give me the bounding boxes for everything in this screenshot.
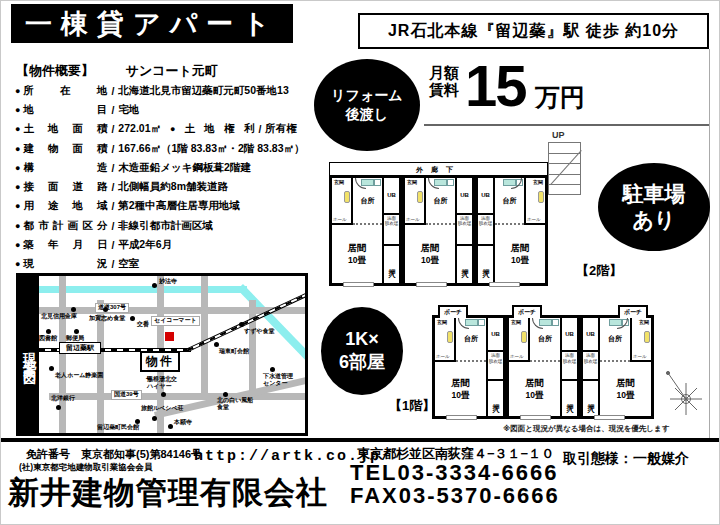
hall-label: ホール (633, 354, 647, 359)
map-poi-label: 妙法寺 (159, 278, 177, 285)
window-symbol (489, 282, 520, 287)
living-room: 居間10畳 (509, 362, 560, 416)
living-room-size: 10畳 (526, 390, 544, 402)
overview-item-label: 所在地 (23, 84, 107, 98)
overview-separator: / (111, 239, 114, 251)
washroom: 洗面 脱衣場 (457, 215, 472, 246)
entrance-area: 玄関ホール (435, 318, 456, 362)
overview-row: ●地目/宅地 (15, 100, 315, 119)
kitchen-area: 台所 (495, 178, 524, 225)
overview-separator: / (111, 258, 114, 270)
map-side-banner: 現地案内図 (19, 276, 39, 433)
living-room-size: 10畳 (617, 390, 635, 402)
map-side-label: 現地案内図 (20, 342, 38, 367)
station-access-box: JR石北本線『留辺蘂』駅 徒歩 約10分 (358, 13, 709, 49)
overview-item-value: 宅地 (118, 103, 139, 117)
toilet-fixture (644, 331, 650, 343)
reform-badge-line1: リフォーム (331, 86, 402, 105)
living-room-label: 居間 (348, 242, 367, 255)
bullet-icon: ● (15, 163, 20, 173)
overview-header: 【物件概要】 サンコート元町 (16, 62, 218, 80)
map-poi-dot (46, 329, 51, 334)
floor2-label: 【2階】 (576, 262, 622, 280)
map-poi-dot (161, 392, 166, 397)
map-poi-label: 温根湯北交 ハイヤー (147, 376, 177, 390)
map-poi-label: 図書館 (39, 335, 57, 342)
map-poi-label: 旅館ルベシベ荘 (141, 405, 184, 412)
overview-separator: / (111, 104, 114, 116)
overview-row: ●用途地域/第2種中高層住居専用地域 (15, 197, 315, 216)
map-poi-label: 本願寺 (174, 419, 192, 426)
kitchen-label: 台所 (503, 196, 517, 206)
map-poi-label: すずや食堂 (244, 328, 274, 335)
entrance-label: 玄関 (437, 319, 447, 325)
bullet-icon: ● (15, 124, 20, 134)
overview-row: ●建物面積/167.66㎡（1階 83.83㎡・2階 83.83㎡） (15, 139, 315, 158)
overview-item-label: 土地権利 (184, 122, 254, 136)
kitchen-label: 台所 (464, 334, 478, 344)
floorplan-unit: UB洗面 脱衣場押入玄関ホール台所居間10畳 (329, 175, 402, 286)
overview-separator: / (111, 162, 114, 174)
living-room-size: 10畳 (421, 255, 439, 267)
bullet-icon: ● (15, 201, 20, 211)
map-poi-label: 老人ホーム静楽園 (55, 372, 103, 379)
overview-section-label: 【物件概要】 (16, 63, 94, 78)
overview-row: ●都市計画区分/非線引都市計画区域 (15, 216, 315, 235)
rooms-badge-line2: 6部屋 (339, 351, 385, 374)
parking-badge-line1: 駐車場 (623, 181, 686, 207)
map-poi-dot (152, 416, 157, 421)
entrance-label: 玄関 (334, 179, 344, 185)
parking-badge: 駐車場 あり (598, 163, 710, 251)
porch: ポーチ (618, 305, 648, 318)
service-column: UB洗面 脱衣場押入 (560, 318, 577, 416)
unit-bath-room: UB (384, 178, 399, 215)
washroom: 洗面 脱衣場 (384, 215, 399, 246)
kitchen-label: 台所 (361, 196, 375, 206)
station-marker: 留辺蘂駅 (59, 342, 101, 354)
page-right-border (709, 49, 710, 438)
bullet-icon: ● (15, 105, 20, 115)
service-column: UB洗面 脱衣場押入 (455, 178, 472, 283)
station-access-text: JR石北本線『留辺蘂』駅 徒歩 約10分 (388, 21, 679, 42)
unit-bath-room: UB (457, 178, 472, 215)
overview-row: ●現況/空室 (15, 255, 315, 274)
entrance-label: 玄関 (639, 319, 649, 325)
map-poi-label: 瑞東町会館 (219, 348, 249, 355)
toilet-fixture (521, 331, 527, 343)
kitchen-label: 台所 (538, 334, 552, 344)
window-symbol (594, 415, 625, 420)
service-column: UB洗面 脱衣場押入 (583, 318, 600, 416)
window-symbol (343, 282, 374, 287)
map-poi-label: 留辺蘂町民会館 (97, 424, 139, 431)
map-poi-label: 交番 (137, 321, 149, 328)
porch: ポーチ (438, 305, 468, 318)
washroom: 洗面 脱衣場 (478, 215, 493, 246)
river-shape (39, 286, 247, 293)
bullet-icon: ● (15, 86, 20, 96)
overview-row: ●所在地/北海道北見市留辺蘂町元町50番地13 (15, 81, 315, 100)
map-poi-label: 加賀志め食堂 (89, 315, 125, 322)
map-poi-dot (103, 307, 108, 312)
washroom: 洗面 脱衣場 (562, 352, 577, 381)
window-symbol (416, 282, 447, 287)
map-poi-label: 下水道管理 センター (263, 373, 293, 387)
floorplan-unit: UB洗面 脱衣場押入玄関ホール台所居間10畳ポーチ (580, 315, 654, 419)
bullet-icon: ● (15, 259, 20, 269)
overview-separator: / (111, 181, 114, 193)
map-poi-label: 北見信用金庫 (41, 313, 77, 320)
outer-corridor: 外廊下 (329, 162, 548, 175)
overview-separator: / (258, 123, 261, 135)
entrance-area: 玄関ホール (524, 178, 545, 225)
overview-item-value: 非線引都市計画区域 (118, 219, 213, 233)
map-road (249, 300, 256, 400)
closet: 押入 (478, 246, 493, 283)
unit-bath-room: UB (478, 178, 493, 215)
living-room: 居間10畳 (435, 362, 486, 416)
living-room: 居間10畳 (495, 225, 545, 283)
window-symbol (446, 415, 477, 420)
floor1-label: 【1階】 (389, 397, 435, 415)
floorplan-unit: UB洗面 脱衣場押入玄関ホール台所居間10畳ポーチ (432, 315, 506, 419)
toilet-fixture (344, 191, 350, 203)
toilet-fixture (417, 191, 423, 203)
service-column: UB洗面 脱衣場押入 (478, 178, 495, 283)
closet: 押入 (562, 381, 577, 416)
hall-label: ホール (527, 217, 541, 222)
overview-item-label: 構造 (23, 161, 107, 175)
map-poi-label: 北の白い風船 食堂 (217, 397, 253, 411)
entrance-area: 玄関ホール (509, 318, 530, 362)
overview-item-label: 都市計画区分 (23, 219, 107, 233)
entrance-label: 玄関 (511, 319, 521, 325)
toilet-fixture (538, 191, 544, 203)
living-room-size: 10畳 (348, 255, 366, 267)
rent-amount: 15 (465, 57, 526, 115)
flyer-title-bar: 一棟貸アパート (11, 4, 293, 43)
property-marker (165, 332, 174, 341)
rent-label-line2: 賃料 (429, 81, 459, 98)
closet: 押入 (384, 246, 399, 283)
stairs-up-label: UP (552, 130, 565, 140)
floorplan-1f-units: UB洗面 脱衣場押入玄関ホール台所居間10畳ポーチUB洗面 脱衣場押入玄関ホール… (432, 315, 654, 419)
living-room: 居間10畳 (405, 225, 455, 283)
map-poi-label: 道道307号 (95, 303, 129, 313)
map-poi-dot (214, 342, 219, 347)
map-poi-dot (130, 316, 135, 321)
floorplan-1f: UB洗面 脱衣場押入玄関ホール台所居間10畳ポーチUB洗面 脱衣場押入玄関ホール… (432, 315, 654, 419)
service-column: UB洗面 脱衣場押入 (486, 318, 503, 416)
living-room-size: 10畳 (511, 255, 529, 267)
overview-separator: / (111, 200, 114, 212)
entrance-area: 玄関ホール (332, 178, 353, 225)
map-poi-label: 国道39号 (111, 390, 142, 400)
map-poi-dot (239, 322, 244, 327)
floorplan-unit: UB洗面 脱衣場押入玄関ホール台所居間10畳 (475, 175, 548, 286)
rooms-badge: 1K× 6部屋 (321, 307, 403, 395)
overview-item-label: 接面道路 (23, 180, 107, 194)
overview-separator: / (111, 143, 114, 155)
reform-badge: リフォーム 後渡し (314, 59, 420, 151)
porch: ポーチ (512, 305, 542, 318)
overview-row: ●構造/木造亜鉛メッキ鋼板葺2階建 (15, 158, 315, 177)
overview-item-value: 所有権 (265, 122, 297, 136)
living-room-size: 10畳 (452, 390, 470, 402)
living-room-label: 居間 (525, 377, 544, 390)
rent-label: 月額 賃料 (429, 64, 459, 98)
rooms-badge-line1: 1K× (345, 328, 379, 351)
closet: 押入 (457, 246, 472, 283)
overview-item-label: 用途地域 (23, 199, 107, 213)
location-map: 現地案内図 留辺蘂駅 物件 妙法寺道道307号北見信用金庫加賀志め食堂交番セイコ… (16, 273, 308, 436)
entrance-label: 玄関 (533, 179, 543, 185)
compass-icon (663, 369, 709, 419)
map-poi-dot (71, 307, 76, 312)
overview-item-value: 空室 (118, 257, 139, 271)
living-room-label: 居間 (511, 242, 530, 255)
window-symbol (520, 415, 551, 420)
map-poi-dot (56, 405, 61, 410)
toilet-fixture (447, 331, 453, 343)
flyer-title: 一棟貸アパート (25, 6, 279, 42)
rent-unit: 万円 (535, 81, 585, 114)
entrance-area: 玄関ホール (630, 318, 651, 362)
company-name: 新井建物管理有限会社 (8, 472, 328, 514)
map-road (49, 393, 305, 400)
washroom: 洗面 脱衣場 (488, 352, 503, 381)
map-poi-dot (49, 366, 54, 371)
overview-item-value: 167.66㎡（1階 83.83㎡・2階 83.83㎡） (118, 142, 304, 156)
living-room-label: 居間 (616, 377, 635, 390)
overview-item-value: 第2種中高層住居専用地域 (118, 199, 239, 213)
map-canvas: 留辺蘂駅 物件 妙法寺道道307号北見信用金庫加賀志め食堂交番セイコーマート図書… (39, 276, 305, 433)
overview-row: ●接面道路/北側幅員約8m舗装道路 (15, 177, 315, 196)
bullet-icon: ● (15, 221, 20, 231)
floorplan-2f: 外廊下 UB洗面 脱衣場押入玄関ホール台所居間10畳UB洗面 脱衣場押入玄関ホー… (329, 162, 548, 286)
entrance-area: 玄関ホール (405, 178, 426, 225)
unit-bath-room: UB (488, 318, 503, 352)
staircase (548, 142, 581, 195)
bullet-icon: ● (15, 182, 20, 192)
overview-list: ●所在地/北海道北見市留辺蘂町元町50番地13●地目/宅地●土地面積/272.0… (15, 81, 315, 274)
washroom: 洗面 脱衣場 (583, 352, 598, 381)
overview-separator: / (111, 85, 114, 97)
living-room-label: 居間 (451, 377, 470, 390)
overview-item-value: 平成2年6月 (118, 238, 172, 252)
unit-bath-room: UB (562, 318, 577, 352)
closet: 押入 (583, 381, 598, 416)
map-poi-dot (152, 283, 157, 288)
overview-row: ●築年月日/平成2年6月 (15, 235, 315, 254)
flyer-page: 一棟貸アパート JR石北本線『留辺蘂』駅 徒歩 約10分 【物件概要】 サンコー… (0, 0, 720, 525)
overview-item-label: 築年月日 (23, 238, 107, 252)
overview-separator: / (111, 220, 114, 232)
kitchen-label: 台所 (434, 196, 448, 206)
overview-item-value: 北海道北見市留辺蘂町元町50番地13 (118, 84, 288, 98)
living-room: 居間10畳 (600, 362, 651, 416)
property-name: サンコート元町 (126, 63, 218, 78)
map-poi-label: セイコーマート (151, 316, 200, 326)
living-room-label: 居間 (421, 242, 440, 255)
license-number: 免許番号 東京都知事(5)第84146号 (26, 447, 202, 462)
floorplan-disclaimer: ※図面と現況が異なる場合は、現況を優先します (503, 424, 669, 434)
parking-badge-line2: あり (633, 207, 676, 233)
overview-item-value: 272.01㎡ (118, 122, 161, 136)
bullet-icon: ● (15, 144, 20, 154)
floorplan-2f-units: UB洗面 脱衣場押入玄関ホール台所居間10畳UB洗面 脱衣場押入玄関ホール台所居… (329, 175, 548, 286)
fax-number: FAX03-5370-6666 (350, 483, 560, 509)
unit-bath-room: UB (583, 318, 598, 352)
floorplan-unit: UB洗面 脱衣場押入玄関ホール台所居間10畳ポーチ (506, 315, 580, 419)
reform-badge-line2: 後渡し (346, 105, 388, 124)
map-poi-label: 郵便局 (66, 335, 84, 342)
overview-row: ●土地面積/272.01㎡ ●土地権利/所有権 (15, 120, 315, 139)
hall-label: ホール (436, 354, 450, 359)
overview-item-label: 土地面積 (23, 122, 107, 136)
overview-item-value: 北側幅員約8m舗装道路 (118, 180, 228, 194)
overview-item-label: 現況 (23, 257, 107, 271)
map-poi-label: 北洋銀行 (51, 395, 75, 402)
hall-label: ホール (406, 217, 420, 222)
bullet-icon: ● (161, 123, 175, 136)
property-map-label: 物件 (140, 351, 180, 372)
hall-label: ホール (333, 217, 347, 222)
service-column: UB洗面 脱衣場押入 (382, 178, 399, 283)
map-poi-dot (74, 329, 79, 334)
footer-divider (1, 438, 720, 442)
rent-underline (424, 124, 709, 126)
floorplan-unit: UB洗面 脱衣場押入玄関ホール台所居間10畳 (402, 175, 475, 286)
bullet-icon: ● (15, 240, 20, 250)
entrance-label: 玄関 (407, 179, 417, 185)
deal-type: 取引態様：一般媒介 (563, 450, 689, 468)
rent-label-line1: 月額 (429, 64, 459, 81)
kitchen-label: 台所 (608, 334, 622, 344)
overview-item-label: 建物面積 (23, 142, 107, 156)
hall-label: ホール (510, 354, 524, 359)
living-room: 居間10畳 (332, 225, 382, 283)
overview-item-label: 地目 (23, 103, 107, 117)
map-poi-dot (270, 367, 275, 372)
overview-item-value: 木造亜鉛メッキ鋼板葺2階建 (118, 161, 251, 175)
closet: 押入 (488, 381, 503, 416)
map-poi-dot (168, 424, 173, 429)
overview-separator: / (111, 123, 114, 135)
